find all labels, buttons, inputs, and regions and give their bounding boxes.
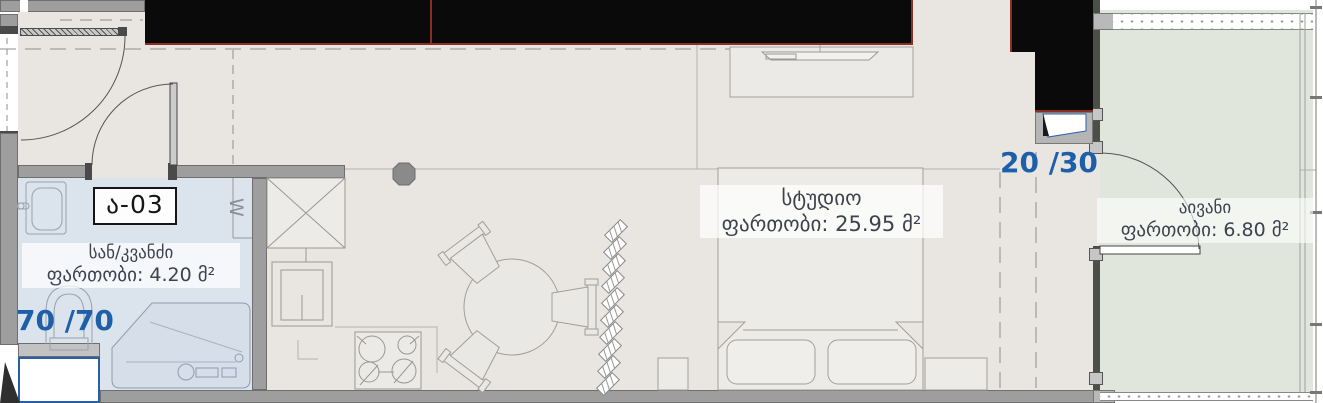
dimension-70-70: 70 /70 (16, 307, 114, 335)
rail-fitting-top (1093, 13, 1115, 30)
balcony-name: აივანი (1097, 198, 1313, 219)
bathroom-right-wall (252, 178, 267, 390)
studio-area: ფართობი: 25.95 მ² (700, 211, 943, 237)
window-band-bottom-left (18, 343, 100, 357)
balcony-railing-top (1113, 13, 1313, 30)
bottom-wall (100, 390, 1100, 403)
studio-name: სტუდიო (700, 185, 943, 211)
floor-plan: W (0, 0, 1323, 403)
bathroom-name: სან/კვანძი (22, 243, 240, 264)
balcony-railing-bottom (1100, 392, 1313, 401)
red-wall-line (145, 43, 913, 45)
balcony-label: აივანი ფართობი: 6.80 მ² (1097, 198, 1313, 243)
bathroom-top-wall (18, 165, 345, 178)
entry-jamb-top (0, 26, 18, 34)
red-column-left-edge (1010, 0, 1012, 52)
unit-number-label: ა-03 (93, 187, 177, 225)
shaft-bottom-left (18, 357, 100, 403)
balcony-area: ფართობი: 6.80 მ² (1097, 219, 1313, 243)
shaft-wedge (0, 362, 20, 403)
balcony-jamb-4 (1089, 372, 1103, 385)
wall-band-gap (20, 0, 28, 12)
bathroom-label: სან/კვანძი ფართობი: 4.20 მ² (22, 243, 240, 288)
entry-door-leaf (20, 28, 125, 36)
balcony-jamb-3 (1089, 248, 1103, 261)
bath-door-jamb-left (85, 163, 92, 180)
red-axis-line (430, 0, 432, 45)
bath-door-jamb-right (168, 163, 177, 180)
dimension-20-30: 20 /30 (1000, 149, 1098, 177)
entry-door-end-block (118, 27, 127, 36)
vent-shaft-box (1035, 112, 1093, 144)
bathroom-area: ფართობი: 4.20 მ² (22, 264, 240, 288)
neighbor-unit-poche-band (145, 0, 913, 45)
column-poche-top (1010, 0, 1093, 52)
bathroom-door-opening (92, 165, 168, 178)
studio-floor-top-patch (913, 0, 1010, 50)
red-band-end-line (911, 0, 913, 45)
column-poche-lower (1035, 52, 1093, 112)
studio-label: სტუდიო ფართობი: 25.95 მ² (700, 185, 943, 238)
